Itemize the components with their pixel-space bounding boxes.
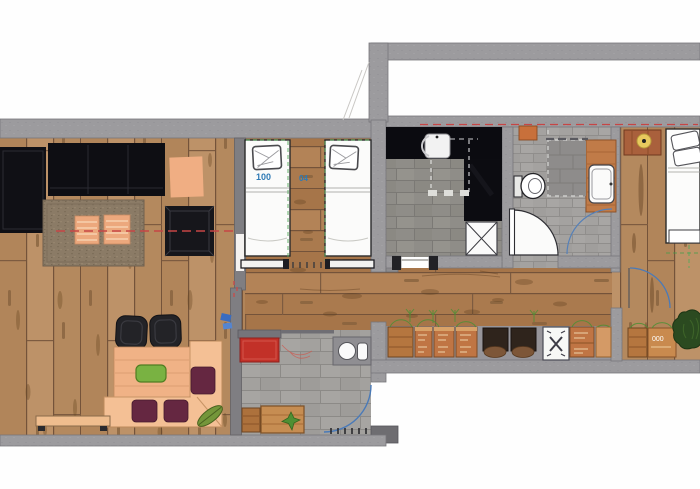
svg-text:04: 04 (299, 174, 308, 183)
svg-text:000: 000 (652, 336, 664, 343)
svg-text:100: 100 (256, 172, 271, 182)
